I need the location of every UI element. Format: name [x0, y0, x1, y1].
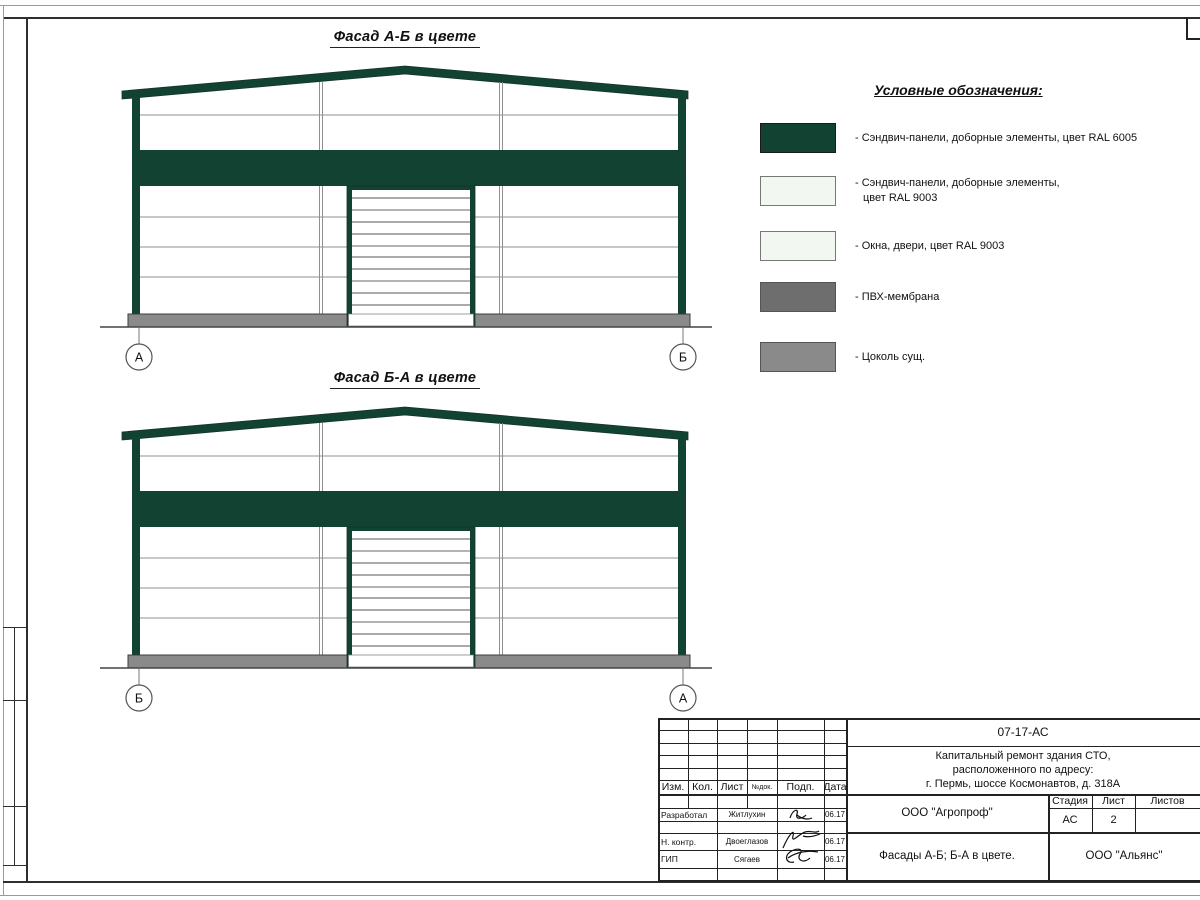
column-left — [132, 96, 140, 314]
margin-div-2 — [3, 700, 26, 701]
column-right — [678, 96, 686, 314]
axis-letter-right: Б — [679, 351, 687, 365]
row-date: 06.17 — [824, 833, 846, 850]
corner-stamp-box — [1186, 17, 1200, 40]
color-swatch — [760, 342, 836, 372]
drawing-title: Фасады А-Б; Б-А в цвете. — [846, 832, 1048, 880]
col-ndok: №док. — [747, 780, 777, 794]
drawing-sheet: Фасад А-Б в цвете — [0, 0, 1200, 900]
legend-item-ral9003-panels: - Сэндвич-панели, доборные элементы, цве… — [760, 176, 1060, 206]
axis-letter-right: А — [679, 692, 688, 706]
roof — [122, 66, 688, 99]
legend-title: Условные обозначения: — [874, 82, 1043, 98]
accent-band — [140, 150, 678, 186]
sheet-edge-bottom — [0, 895, 1200, 896]
stage-label: Стадия — [1048, 794, 1092, 808]
color-swatch — [760, 123, 836, 153]
margin-div-1 — [3, 627, 26, 628]
stage-value: АС — [1048, 808, 1092, 832]
facade-ba: Фасад Б-А в цвете — [95, 368, 715, 720]
signature — [784, 806, 818, 823]
legend-item-windows-doors: - Окна, двери, цвет RAL 9003 — [760, 231, 1004, 261]
row-name: Житлухин — [717, 808, 777, 821]
sheet-edge-top — [0, 5, 1200, 6]
col-data: Дата — [824, 780, 846, 794]
org-name: ООО "Альянс" — [1048, 832, 1200, 880]
facade-ba-drawing: Б А — [95, 396, 715, 720]
sheet-number: 2 — [1092, 808, 1135, 832]
sheet-label: Лист — [1092, 794, 1135, 808]
row-name: Сягаев — [717, 850, 777, 868]
col-izm: Изм. — [658, 780, 688, 794]
frame-top — [3, 17, 1200, 19]
color-swatch — [760, 231, 836, 261]
sheets-label: Листов — [1135, 794, 1200, 808]
row-role: ГИП — [658, 850, 720, 868]
margin-col-line — [14, 627, 15, 865]
sectional-gate — [347, 186, 475, 327]
margin-div-3 — [3, 806, 26, 807]
col-list: Лист — [717, 780, 747, 794]
frame-left — [26, 17, 28, 882]
signature — [780, 842, 822, 868]
accent-band — [140, 491, 678, 527]
color-swatch — [760, 176, 836, 206]
sectional-gate — [347, 527, 475, 668]
sheet-edge-left — [3, 5, 4, 896]
col-podp: Подп. — [777, 780, 824, 794]
row-name: Двоеглазов — [717, 833, 777, 850]
column-right — [678, 437, 686, 655]
row-role: Разработал — [658, 808, 720, 821]
facade-ba-title: Фасад Б-А в цвете — [290, 370, 520, 386]
title-block: Изм. Кол. Лист №док. Подп. Дата Разработ… — [658, 718, 1200, 882]
axis-letter-left: А — [135, 351, 144, 365]
roof — [122, 407, 688, 440]
facade-ab-title: Фасад А-Б в цвете — [290, 29, 520, 45]
legend-item-pvc-membrane: - ПВХ-мембрана — [760, 282, 939, 312]
legend-item-plinth: - Цоколь сущ. — [760, 342, 925, 372]
facade-ab: Фасад А-Б в цвете — [95, 27, 715, 379]
facade-ab-drawing: А Б — [95, 55, 715, 379]
margin-div-4 — [3, 865, 26, 866]
col-kol: Кол. — [688, 780, 717, 794]
project-name: Капитальный ремонт здания СТО, расположе… — [846, 746, 1200, 794]
row-date: 06.17 — [824, 850, 846, 868]
column-left — [132, 437, 140, 655]
row-date: 06.17 — [824, 808, 846, 821]
doc-code: 07-17-АС — [846, 718, 1200, 746]
company: ООО "Агропроф" — [846, 794, 1048, 832]
row-role: Н. контр. — [658, 833, 720, 850]
color-swatch — [760, 282, 836, 312]
axis-letter-left: Б — [135, 692, 143, 706]
legend-item-ral6005: - Сэндвич-панели, доборные элементы, цве… — [760, 123, 1137, 153]
